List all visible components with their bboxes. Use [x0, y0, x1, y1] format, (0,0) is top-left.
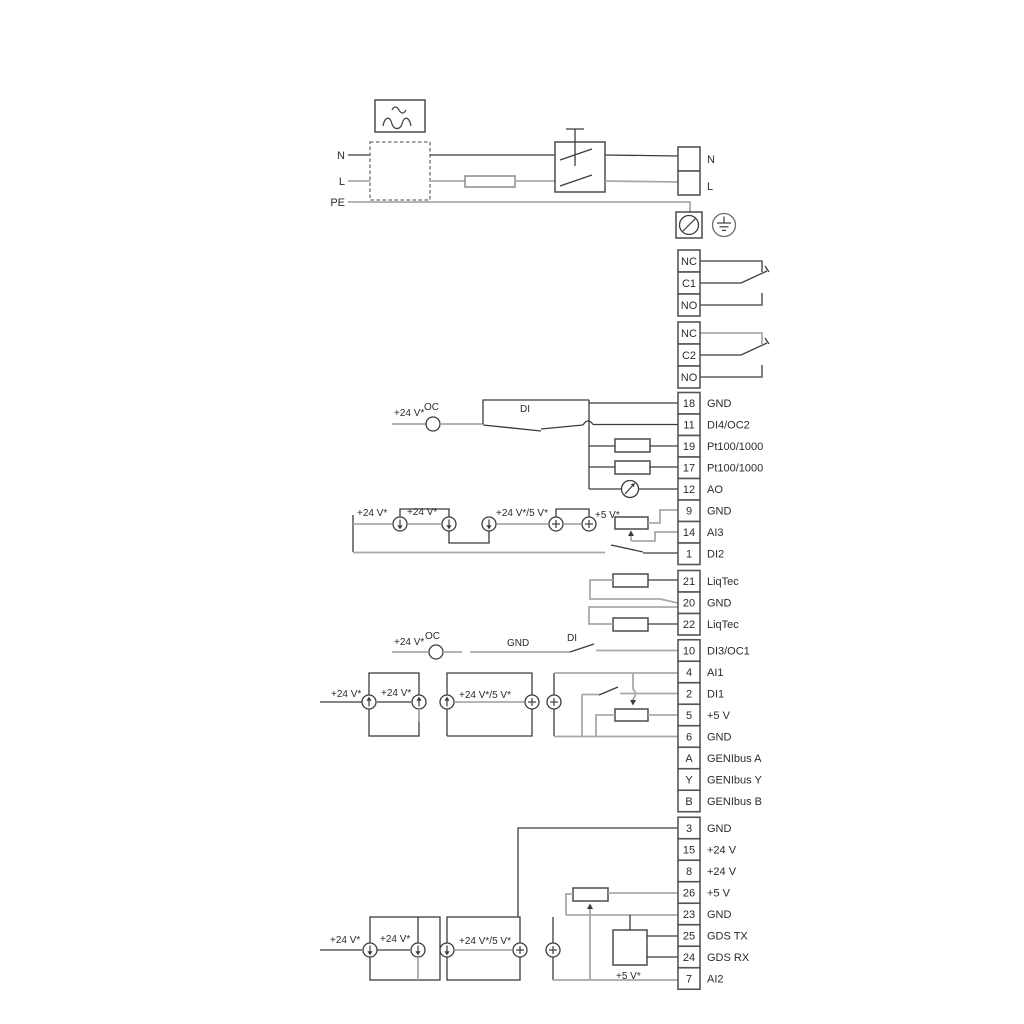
open-collector-icon	[426, 417, 440, 431]
terminal-label: GND	[707, 823, 732, 835]
potentiometer-icon	[615, 709, 648, 721]
relay1-wiring	[700, 261, 769, 305]
terminal-label: LiqTec	[707, 619, 739, 631]
signal-source-icon	[513, 943, 527, 957]
current-source-down-icon	[482, 517, 496, 531]
signal-source-icon	[547, 695, 561, 709]
di2-switch-blade	[611, 545, 643, 552]
terminal-number: 17	[683, 463, 695, 475]
screw-terminal-icon	[676, 212, 702, 238]
terminal-label: GND	[707, 598, 732, 610]
current-source-up-icon	[440, 695, 454, 709]
signal-source-icon	[549, 517, 563, 531]
terminal-number: 26	[683, 887, 695, 899]
di4-bracket	[483, 400, 589, 424]
terminal-label: GENIbus A	[707, 753, 762, 765]
n-left-label: N	[337, 150, 345, 162]
di3-section: +24 V* OC GND DI	[392, 631, 678, 659]
terminal-label: GND	[707, 909, 732, 921]
plus24-label: +24 V*	[394, 637, 424, 648]
di-label: DI	[520, 404, 530, 415]
terminal-number: 12	[683, 484, 695, 496]
plus24-5-label: +24 V*/5 V*	[459, 690, 511, 701]
terminal-number: 11	[683, 420, 694, 432]
terminal-label: GENIbus Y	[707, 774, 762, 786]
plus24-label: +24 V*	[394, 408, 424, 419]
terminal-label: GDS RX	[707, 952, 750, 964]
open-collector-icon	[429, 645, 443, 659]
signal-source-icon	[525, 695, 539, 709]
current-source-down-icon	[442, 517, 456, 531]
relay2-wiring	[700, 333, 769, 377]
wire-hop	[583, 421, 593, 425]
terminal-label: +24 V	[707, 844, 737, 856]
terminal-number: 10	[683, 645, 695, 657]
signal-source-icon	[582, 517, 596, 531]
terminal-label: DI3/OC1	[707, 645, 750, 657]
sensor-option-frame	[370, 917, 440, 980]
potentiometer-wiper-icon	[628, 531, 634, 537]
terminal-label: Pt100/1000	[707, 463, 763, 475]
di-label: DI	[567, 633, 577, 644]
di3-switch-blade	[570, 644, 594, 652]
terminal-number: 4	[686, 667, 692, 679]
terminal-label: GND	[707, 506, 732, 518]
ai2-gds-section: +24 V* +24 V* +24 V*/5 V* +5 V*	[320, 828, 678, 982]
gnd-label: GND	[507, 638, 529, 649]
terminal-number: 18	[683, 398, 695, 410]
terminal-label: +5 V	[707, 710, 731, 722]
analog-output-meter-icon	[622, 481, 639, 498]
terminal-number: 3	[686, 823, 692, 835]
terminal-blocks: NCC1NONCC2NO18GND11DI4/OC219Pt100/100017…	[678, 250, 763, 989]
oc-label: OC	[424, 402, 439, 413]
pt100-resistor-icon	[615, 461, 650, 474]
l-wire-to-terminal	[605, 181, 678, 182]
protective-earth-icon	[713, 214, 736, 237]
terminal-label: GND	[707, 731, 732, 743]
terminal-number: 9	[686, 506, 692, 518]
liqtec-sensor-icon	[613, 574, 648, 587]
terminal-label: GND	[707, 398, 732, 410]
gnd3-wire	[518, 828, 678, 917]
terminal-number: 2	[686, 688, 692, 700]
terminal-label: AO	[707, 484, 723, 496]
terminal-number: 7	[686, 973, 692, 985]
terminal-label: AI3	[707, 527, 724, 539]
plus24-label: +24 V*	[331, 689, 361, 700]
terminal-number: C1	[682, 278, 696, 290]
current-source-up-icon	[362, 695, 376, 709]
terminal-number: NO	[681, 372, 698, 384]
potentiometer-icon	[573, 888, 608, 901]
plus24-5-label: +24 V*/5 V*	[459, 936, 511, 947]
terminal-label: DI4/OC2	[707, 420, 750, 432]
plus24-label: +24 V*	[330, 935, 360, 946]
di4-pt100-ao-section: +24 V* OC DI	[392, 400, 678, 498]
plus24-label: +24 V*	[380, 934, 410, 945]
relay1-contact-blade	[741, 271, 767, 283]
current-source-down-icon	[393, 517, 407, 531]
terminal-label: DI1	[707, 688, 724, 700]
current-source-up-icon	[412, 695, 426, 709]
sensor-option-frame	[447, 673, 532, 736]
terminal-number: 25	[683, 930, 695, 942]
pe-wire	[348, 202, 690, 212]
terminal-number: 15	[683, 844, 695, 856]
terminal-number: C2	[682, 350, 696, 362]
mains-terminal-block: N L	[678, 147, 715, 195]
l-right-label: L	[707, 181, 713, 193]
pe-label: PE	[330, 197, 345, 209]
l-left-label: L	[339, 176, 345, 188]
di1-switch-blade	[599, 687, 618, 695]
terminal-number: NO	[681, 300, 698, 312]
terminal-number: 22	[683, 619, 695, 631]
oc-label: OC	[425, 631, 440, 642]
terminal-label: GDS TX	[707, 930, 748, 942]
current-source-down-icon	[440, 943, 454, 957]
terminal-label: GENIbus B	[707, 796, 762, 808]
terminal-label: AI2	[707, 973, 724, 985]
current-source-down-icon	[411, 943, 425, 957]
terminal-label: DI2	[707, 549, 724, 561]
terminal-label: +5 V	[707, 887, 731, 899]
terminal-number: 20	[683, 598, 695, 610]
terminal-number: 5	[686, 710, 692, 722]
signal-source-icon	[546, 943, 560, 957]
terminal-number: 21	[683, 576, 695, 588]
power-supply-section: N L PE N	[330, 100, 735, 238]
ai3-di2-section: +24 V* +24 V* +24 V*/5 V* +5 V*	[353, 507, 678, 553]
terminal-number: Y	[685, 774, 693, 786]
gds-sensor-box	[613, 915, 678, 965]
terminal-number: 8	[686, 866, 692, 878]
terminal-number: NC	[681, 256, 697, 268]
relay2-contact-blade	[741, 343, 767, 355]
n-right-label: N	[707, 154, 715, 166]
wiring-diagram-page: N L PE N	[0, 0, 1024, 1024]
terminal-number: 24	[683, 952, 695, 964]
terminal-label: +24 V	[707, 866, 737, 878]
terminal-label: Pt100/1000	[707, 441, 763, 453]
sensor-option-frame	[369, 673, 419, 736]
plus24-label: +24 V*	[357, 508, 387, 519]
liqtec-section	[589, 574, 678, 631]
terminal-number: 19	[683, 441, 695, 453]
n-wire-to-terminal	[605, 155, 678, 156]
liqtec-sensor-icon	[613, 618, 648, 631]
supply-filter-box	[370, 142, 430, 200]
potentiometer-icon	[615, 517, 648, 529]
potentiometer-wiper-icon	[587, 904, 593, 910]
terminal-label: LiqTec	[707, 576, 739, 588]
plus24-label: +24 V*	[381, 688, 411, 699]
plus24-5-label: +24 V*/5 V*	[496, 508, 548, 519]
terminal-number: 1	[686, 549, 692, 561]
terminal-number: B	[685, 796, 692, 808]
terminal-number: NC	[681, 328, 697, 340]
fuse-icon	[465, 176, 515, 187]
sensor-option-frame	[447, 917, 520, 980]
main-switch-icon	[555, 129, 605, 192]
current-source-down-icon	[363, 943, 377, 957]
mains-sine-icon	[375, 100, 425, 132]
ai1-di1-section: +24 V* +24 V* +24 V*/5 V*	[320, 673, 678, 737]
terminal-number: A	[685, 753, 693, 765]
di4-switch-blade	[483, 425, 541, 431]
terminal-number: 6	[686, 731, 692, 743]
pt100-resistor-icon	[615, 439, 650, 452]
potentiometer-wiper-icon	[630, 700, 636, 706]
terminal-number: 14	[683, 527, 695, 539]
terminal-number: 23	[683, 909, 695, 921]
wiper-feed	[633, 673, 636, 700]
wiring-diagram: N L PE N	[0, 0, 1024, 1024]
terminal-label: AI1	[707, 667, 724, 679]
